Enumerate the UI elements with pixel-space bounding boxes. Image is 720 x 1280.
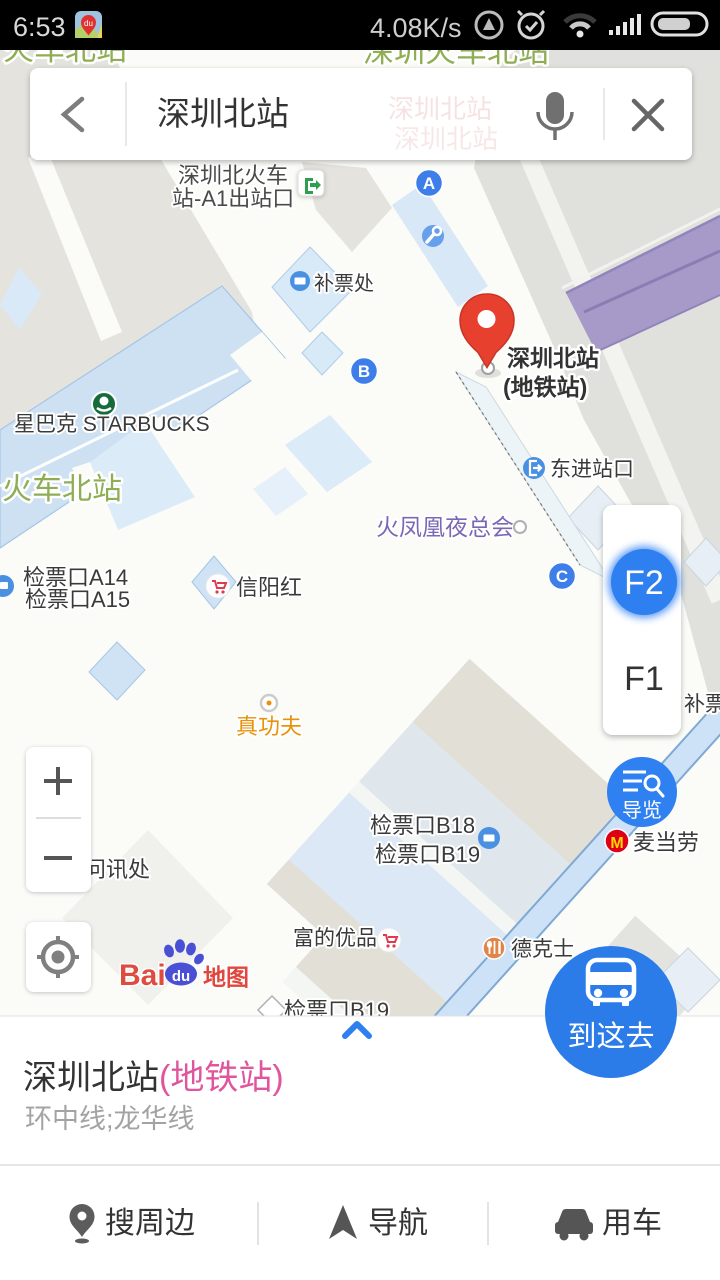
svg-text:检票口B19: 检票口B19 xyxy=(375,842,480,867)
svg-text:环中线;龙华线: 环中线;龙华线 xyxy=(25,1104,195,1134)
svg-text:du: du xyxy=(84,19,93,28)
svg-text:深圳北站: 深圳北站 xyxy=(394,124,498,154)
svg-text:(地铁站): (地铁站) xyxy=(503,374,587,400)
svg-text:深圳北站: 深圳北站 xyxy=(388,94,492,124)
svg-text:导航: 导航 xyxy=(368,1207,428,1240)
svg-text:补票处: 补票处 xyxy=(314,272,374,295)
svg-text:4.08K/s: 4.08K/s xyxy=(370,13,462,43)
svg-text:地图: 地图 xyxy=(203,964,249,990)
svg-text:du: du xyxy=(172,968,190,985)
svg-text:到这去: 到这去 xyxy=(567,1020,654,1053)
svg-text:B: B xyxy=(358,362,370,381)
svg-text:问讯处: 问讯处 xyxy=(84,857,150,882)
svg-text:M: M xyxy=(610,835,623,852)
svg-text:真功夫: 真功夫 xyxy=(236,714,302,739)
svg-text:信阳红: 信阳红 xyxy=(236,575,302,600)
svg-text:火凤凰夜总会: 火凤凰夜总会 xyxy=(376,514,514,540)
svg-text:搜周边: 搜周边 xyxy=(105,1207,195,1240)
svg-text:导览: 导览 xyxy=(622,799,662,822)
svg-text:补票处: 补票处 xyxy=(684,693,720,716)
svg-text:C: C xyxy=(556,567,568,586)
svg-text:F2: F2 xyxy=(624,564,664,602)
svg-text:深圳北站: 深圳北站 xyxy=(157,95,289,132)
svg-text:麦当劳: 麦当劳 xyxy=(633,830,699,855)
svg-text:星巴克 STARBUCKS: 星巴克 STARBUCKS xyxy=(14,413,210,436)
svg-text:深圳北站: 深圳北站 xyxy=(507,345,599,371)
svg-text:检票口A15: 检票口A15 xyxy=(25,587,130,612)
svg-text:用车: 用车 xyxy=(602,1207,662,1240)
svg-text:F1: F1 xyxy=(624,660,664,698)
svg-text:深圳北站(地铁站): 深圳北站(地铁站) xyxy=(23,1059,284,1097)
svg-text:深圳北火车: 深圳北火车 xyxy=(178,163,288,188)
svg-text:A: A xyxy=(423,174,435,193)
svg-text:Bai: Bai xyxy=(119,959,166,992)
svg-text:火车北站: 火车北站 xyxy=(2,473,122,506)
svg-text:站-A1出站口: 站-A1出站口 xyxy=(172,186,294,211)
svg-text:检票口B18: 检票口B18 xyxy=(370,813,475,838)
svg-text:6:53: 6:53 xyxy=(13,12,66,42)
svg-text:东进站口: 东进站口 xyxy=(550,458,634,481)
svg-text:富的优品: 富的优品 xyxy=(293,927,377,950)
svg-text:德克士: 德克士 xyxy=(511,938,574,961)
